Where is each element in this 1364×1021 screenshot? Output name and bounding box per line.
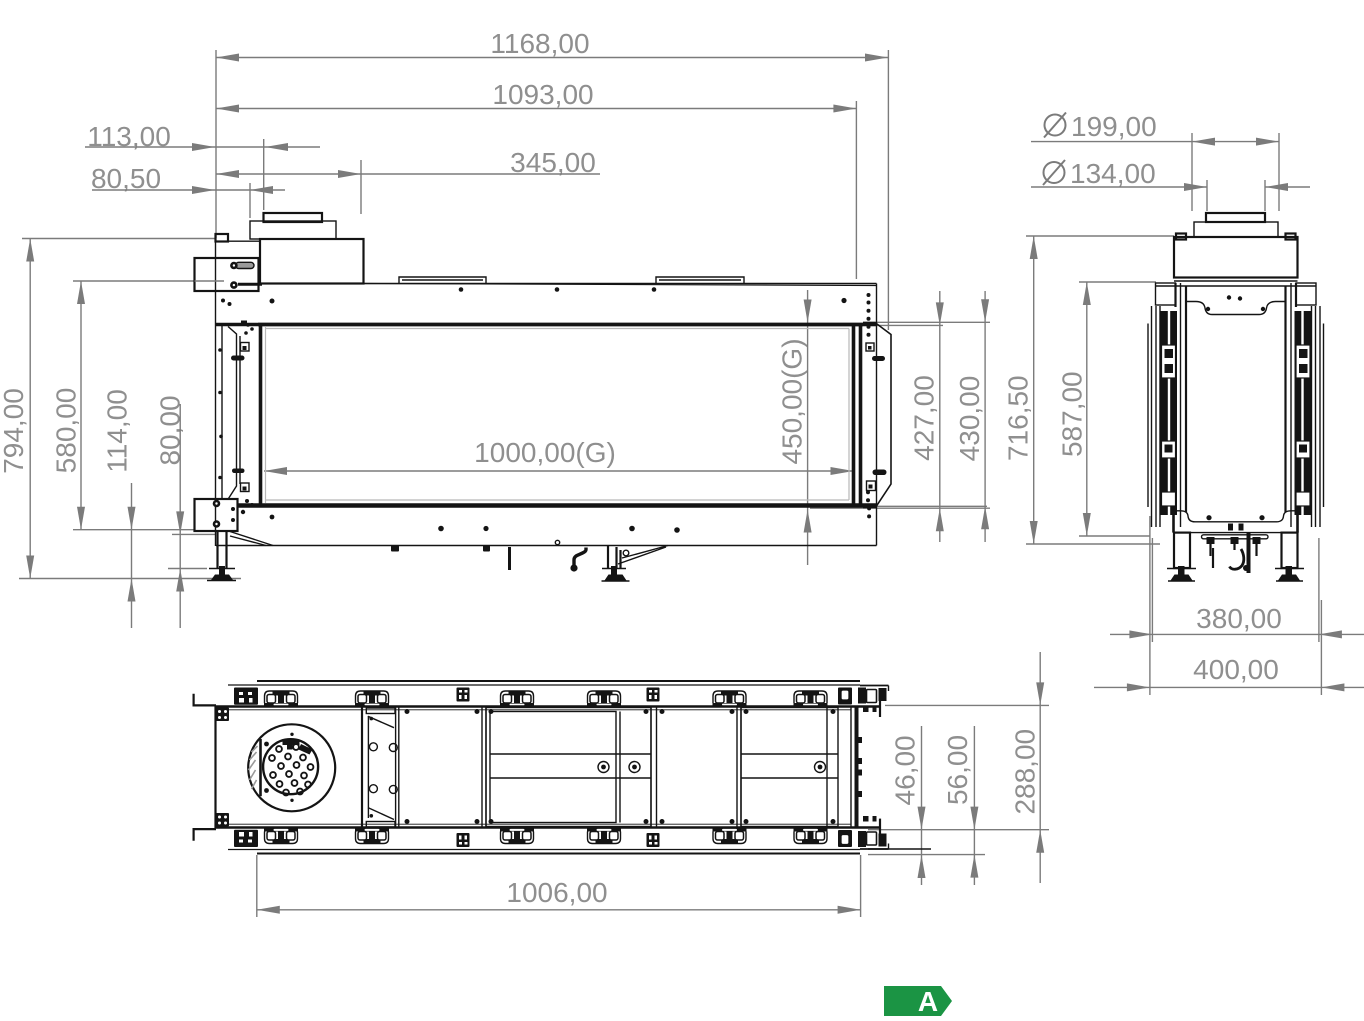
svg-text:380,00: 380,00 (1196, 603, 1282, 634)
svg-text:580,00: 580,00 (51, 388, 82, 474)
svg-text:199,00: 199,00 (1071, 111, 1157, 142)
svg-text:46,00: 46,00 (890, 735, 921, 805)
svg-text:114,00: 114,00 (101, 389, 132, 473)
svg-text:430,00: 430,00 (954, 376, 985, 462)
svg-text:1168,00: 1168,00 (490, 28, 589, 59)
svg-text:427,00: 427,00 (908, 375, 939, 461)
svg-text:56,00: 56,00 (942, 735, 973, 805)
svg-text:134,00: 134,00 (1070, 158, 1156, 189)
svg-text:1006,00: 1006,00 (506, 877, 607, 908)
svg-text:288,00: 288,00 (1009, 729, 1040, 815)
svg-text:1000,00(G): 1000,00(G) (474, 437, 616, 468)
svg-text:794,00: 794,00 (0, 388, 29, 474)
svg-text:A: A (918, 986, 938, 1017)
svg-text:1093,00: 1093,00 (492, 79, 593, 110)
svg-text:716,50: 716,50 (1002, 375, 1033, 461)
svg-text:450,00(G): 450,00(G) (777, 338, 808, 464)
svg-text:587,00: 587,00 (1057, 371, 1088, 457)
svg-text:400,00: 400,00 (1193, 654, 1279, 685)
